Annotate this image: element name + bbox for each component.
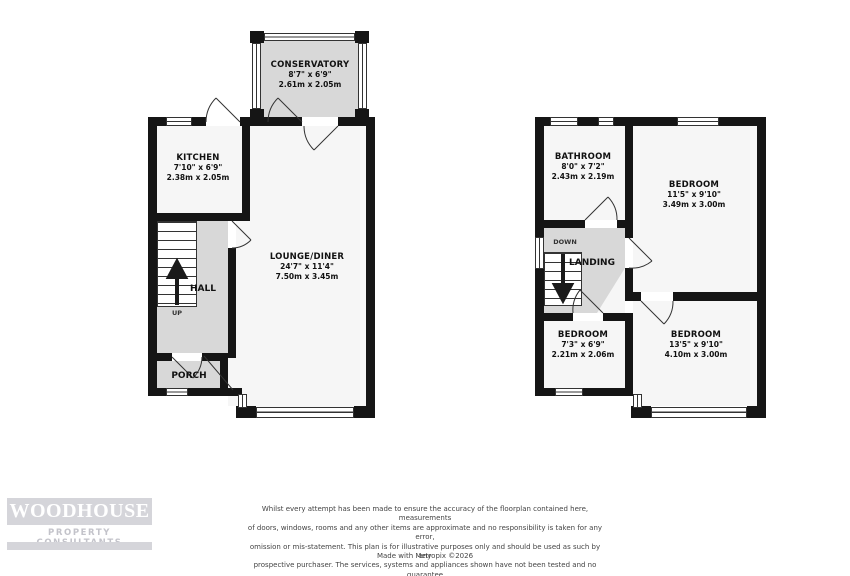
kitchen-label: KITCHEN 7'10" x 6'9" 2.38m x 2.05m	[150, 153, 246, 183]
up-label: UP	[166, 309, 188, 317]
bathroom-label: BATHROOM 8'0" x 7'2" 2.43m x 2.19m	[538, 152, 628, 182]
conservatory-door	[268, 98, 302, 122]
porch-label: PORCH	[163, 371, 215, 381]
bedroom1-label: BEDROOM 11'5" x 9'10" 3.49m x 3.00m	[630, 180, 758, 210]
bedroom1-door	[629, 238, 652, 268]
stairs-up-arrowhead	[169, 262, 185, 277]
hall-lounge-door	[232, 221, 251, 248]
conservatory-label: CONSERVATORY 8'7" x 6'9" 2.61m x 2.05m	[253, 60, 367, 90]
landing-label: LANDING	[556, 258, 628, 268]
lounge-label: LOUNGE/DINER 24'7" x 11'4" 7.50m x 3.45m	[246, 252, 368, 282]
lounge-door-from-conservatory	[304, 126, 338, 150]
bedroom2-label: BEDROOM 7'3" x 6'9" 2.21m x 2.06m	[538, 330, 628, 360]
stairs-down-arrowhead	[555, 285, 571, 300]
bedroom3-label: BEDROOM 13'5" x 9'10" 4.10m x 3.00m	[632, 330, 760, 360]
kitchen-back-door	[206, 98, 240, 122]
door-swing-symbols	[0, 0, 850, 576]
down-label: DOWN	[548, 238, 582, 246]
bedroom3-door	[641, 301, 673, 324]
bedroom2-door	[573, 290, 603, 313]
hall-label: HALL	[180, 284, 226, 294]
bathroom-door	[585, 197, 617, 220]
floorplan-canvas: CONSERVATORY 8'7" x 6'9" 2.61m x 2.05m K…	[0, 0, 850, 576]
